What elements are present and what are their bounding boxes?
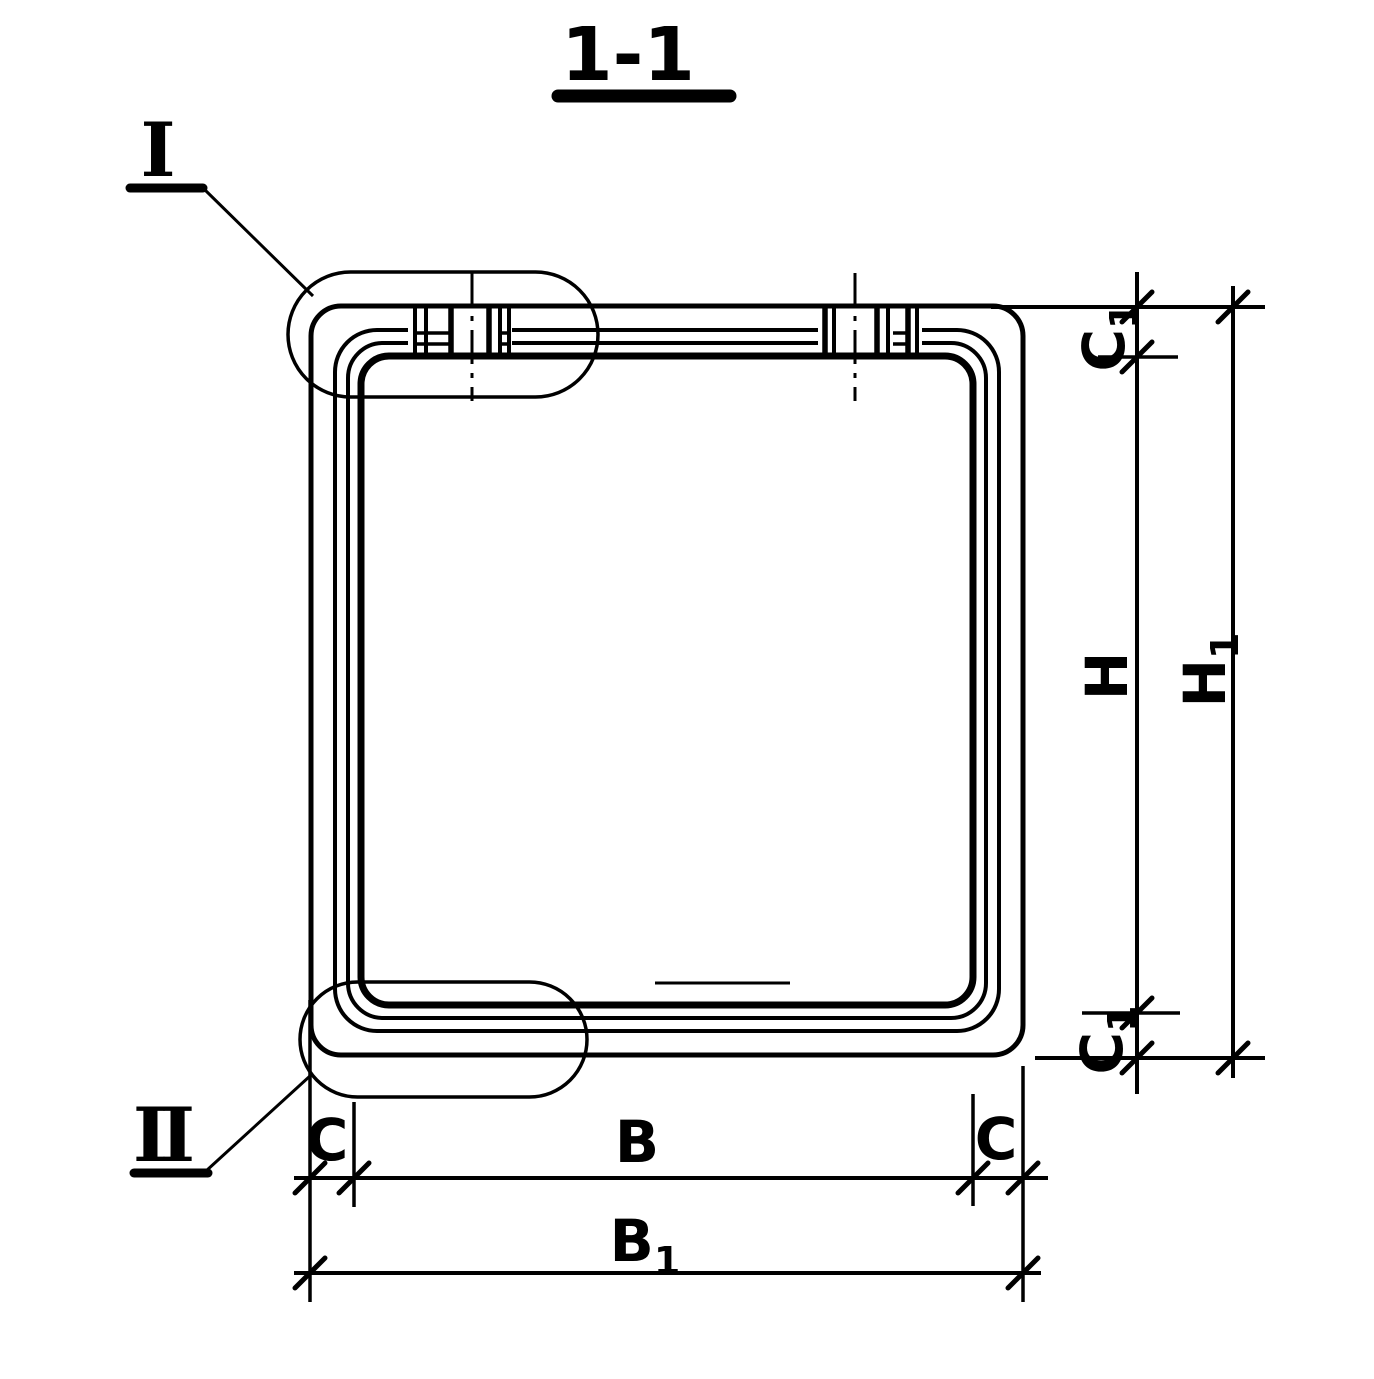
dim-label-c1-top-base: C: [1070, 329, 1138, 372]
dim-label-b1-base: B: [610, 1207, 654, 1275]
dimension-labels: C1 H H1 C1 C B C B1: [306, 302, 1247, 1283]
dim-label-c1-top: C1: [1070, 302, 1146, 371]
dim-label-b1-sub: 1: [654, 1239, 680, 1283]
dim-label-h: H: [1073, 652, 1141, 701]
dim-label-c1-top-sub: 1: [1102, 302, 1146, 328]
detail-1-label: I: [140, 106, 175, 194]
dimension-lines: [294, 272, 1233, 1273]
detail-bubble-2: [300, 982, 587, 1097]
dim-label-c1-bottom-sub: 1: [1100, 1005, 1144, 1031]
section-title-text: 1-1: [561, 12, 695, 98]
frame-walls: [311, 306, 1023, 1055]
dim-label-c-right: C: [975, 1105, 1018, 1173]
section-drawing-1-1: 1-1: [0, 0, 1374, 1379]
joint-right: [818, 273, 922, 401]
detail-1-leader-line: [203, 188, 313, 296]
detail-2-leader-line: [206, 1076, 310, 1171]
detail-2-label: II: [133, 1091, 192, 1179]
dim-label-h1-sub: 1: [1203, 633, 1247, 659]
dim-label-c-left: C: [306, 1106, 349, 1174]
wall-inner-line-2: [348, 343, 986, 1018]
callout-detail-1: I: [130, 106, 313, 296]
callout-detail-2: II: [133, 1076, 310, 1179]
dim-label-b: B: [615, 1108, 659, 1176]
dim-label-b1: B1: [610, 1207, 681, 1283]
joint-left: [408, 273, 512, 401]
extension-lines: [310, 307, 1265, 1302]
dim-label-c1-bottom-base: C: [1068, 1032, 1136, 1075]
wall-outer-outline: [311, 306, 1023, 1055]
wall-inner-surface: [361, 356, 973, 1005]
dimension-ticks: [295, 292, 1248, 1288]
dim-label-c1-bottom: C1: [1068, 1005, 1144, 1074]
wall-inner-line-1: [335, 330, 999, 1031]
dim-label-h1-base: H: [1171, 659, 1239, 708]
section-title: 1-1: [558, 12, 730, 98]
drawing-sheet: 1-1: [0, 0, 1374, 1379]
dim-label-h1: H1: [1171, 633, 1247, 708]
